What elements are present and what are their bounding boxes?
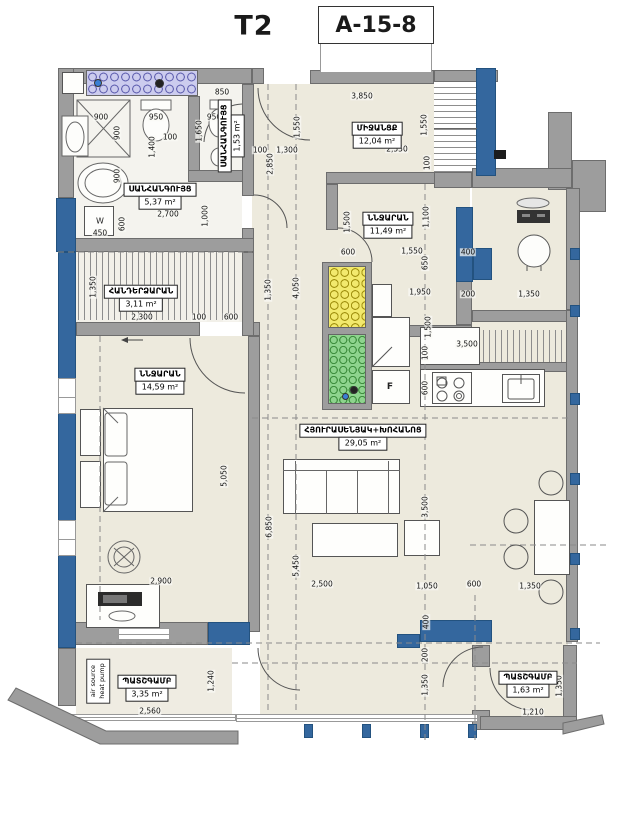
fridge-label: F [387,382,393,392]
dimension-label: 1,240 [207,669,215,692]
room-area: 29,05 m² [339,437,387,450]
dimension-label: 200 [421,647,429,663]
room-area: 14,59 m² [136,381,184,394]
dimension-label: 1,350 [89,275,97,298]
dimension-label: 950 [148,113,164,121]
dimension-label: 2,560 [138,707,161,715]
room-name: ՍԱՆՀԱՆԳՈՒՅՑ [124,183,197,197]
room-label-hall: ՄԻՋԱՆՑՔ 12,04 m² [352,122,403,149]
dimension-label: 1,500 [424,315,432,338]
dimension-label: 2,900 [149,577,172,585]
dimension-label: 1,350 [517,290,540,298]
dimension-label: 2,300 [130,313,153,321]
dimension-label: 4,050 [292,276,300,299]
dimension-label: 900 [113,168,121,184]
room-label-bedroom1: ՆՆՋԱՐԱՆ 14,59 m² [134,368,185,395]
dimension-label: 450 [92,229,108,237]
dimension-label: 600 [118,216,126,232]
room-name: ՄԻՋԱՆՑՔ [352,122,403,136]
dimension-label: 2,850 [266,152,274,175]
room-label-balcony2: ՊԱՏՇԳԱՄԲ 1,63 m² [498,671,557,698]
dimension-label: 1,950 [408,288,431,296]
dimension-label: 1,500 [343,210,351,233]
room-name: ՆՆՋԱՐԱՆ [362,212,413,226]
floor-plan-canvas: T2 A-15-8 [0,0,620,821]
room-area: 1,53 m² [231,114,244,157]
dimension-label: 3,500 [421,495,429,518]
room-name: ՊԱՏՇԳԱՄԲ [498,671,557,685]
dimension-label: 6,850 [265,515,273,538]
dimension-label: 1,300 [275,146,298,154]
dimension-label: 1,000 [201,204,209,227]
dimension-label: 900 [93,113,109,121]
room-area: 3,11 m² [119,298,162,311]
dimension-label: 100 [191,313,207,321]
heat-pump-line2: heat pump [98,663,107,698]
room-name: ՍԱՆՀԱՆԳՈՒՅՑ [218,100,232,173]
apartment-code: A-15-8 [335,13,416,38]
room-name: ՀՅՈՒՐԱՍԵՆՅԱԿ+ԽՈՀԱՆՈՑ [299,424,426,438]
dimension-label: 1,550 [400,247,423,255]
dimension-label: 600 [421,380,429,396]
dimension-label: 5,050 [220,464,228,487]
dimension-label: 400 [460,248,476,256]
unit-type-label: T2 [234,11,273,42]
dimension-label: 600 [466,580,482,588]
dimension-label: 1,100 [422,205,430,228]
dimension-label: 850 [214,88,230,96]
dimension-label: 1,050 [415,582,438,590]
room-label-bedroom2: ՆՆՋԱՐԱՆ 11,49 m² [362,212,413,239]
dimension-label: 1,210 [521,708,544,716]
dimension-label: 1,350 [518,582,541,590]
room-label-wc: ՍԱՆՀԱՆԳՈՒՅՑ 1,53 m² [218,100,245,173]
dimension-label: 1,350 [421,673,429,696]
dimension-label: 600 [340,248,356,256]
dimension-label: 200 [460,290,476,298]
room-name: ՆՆՋԱՐԱՆ [134,368,185,382]
room-name: ՊԱՏՇԳԱՄԲ [117,675,176,689]
dimension-label: 1,350 [264,278,272,301]
room-area: 3,35 m² [125,688,168,701]
dimension-label: 5,450 [292,554,300,577]
dimension-label: 100 [423,155,431,171]
dimension-label: 650 [421,255,429,271]
room-name: ՀԱՆԴԵՐՁԱՐԱՆ [104,285,178,299]
washer-label: W [96,217,104,226]
dimension-label: 100 [162,133,178,141]
dimension-label: 2,500 [310,580,333,588]
room-label-dressing: ՀԱՆԴԵՐՁԱՐԱՆ 3,11 m² [104,285,178,312]
dimension-label: 1,400 [148,135,156,158]
dimension-label: 1,650 [195,119,203,142]
dimension-label: 600 [223,313,239,321]
room-label-balcony1: ՊԱՏՇԳԱՄԲ 3,35 m² [117,675,176,702]
apartment-code-box: A-15-8 [318,6,434,44]
heat-pump-label: air source heat pump [86,658,110,703]
dimension-label: 3,850 [350,92,373,100]
dimension-label: 3,500 [455,340,478,348]
dimension-label: 100 [421,345,429,361]
dimension-label: 2,700 [156,210,179,218]
room-area: 11,49 m² [364,225,412,238]
room-area: 5,37 m² [138,196,181,209]
room-area: 1,63 m² [506,684,549,697]
room-area: 12,04 m² [353,135,401,148]
dimension-label: 1,550 [293,115,301,138]
heat-pump-line1: air source [89,663,98,698]
dimension-label: 1,550 [420,113,428,136]
room-label-bathroom: ՍԱՆՀԱՆԳՈՒՅՑ 5,37 m² [124,183,197,210]
dimension-label: 400 [422,614,430,630]
room-label-living-kitchen: ՀՅՈՒՐԱՍԵՆՅԱԿ+ԽՈՀԱՆՈՑ 29,05 m² [299,424,426,451]
dimension-label: 900 [113,125,121,141]
